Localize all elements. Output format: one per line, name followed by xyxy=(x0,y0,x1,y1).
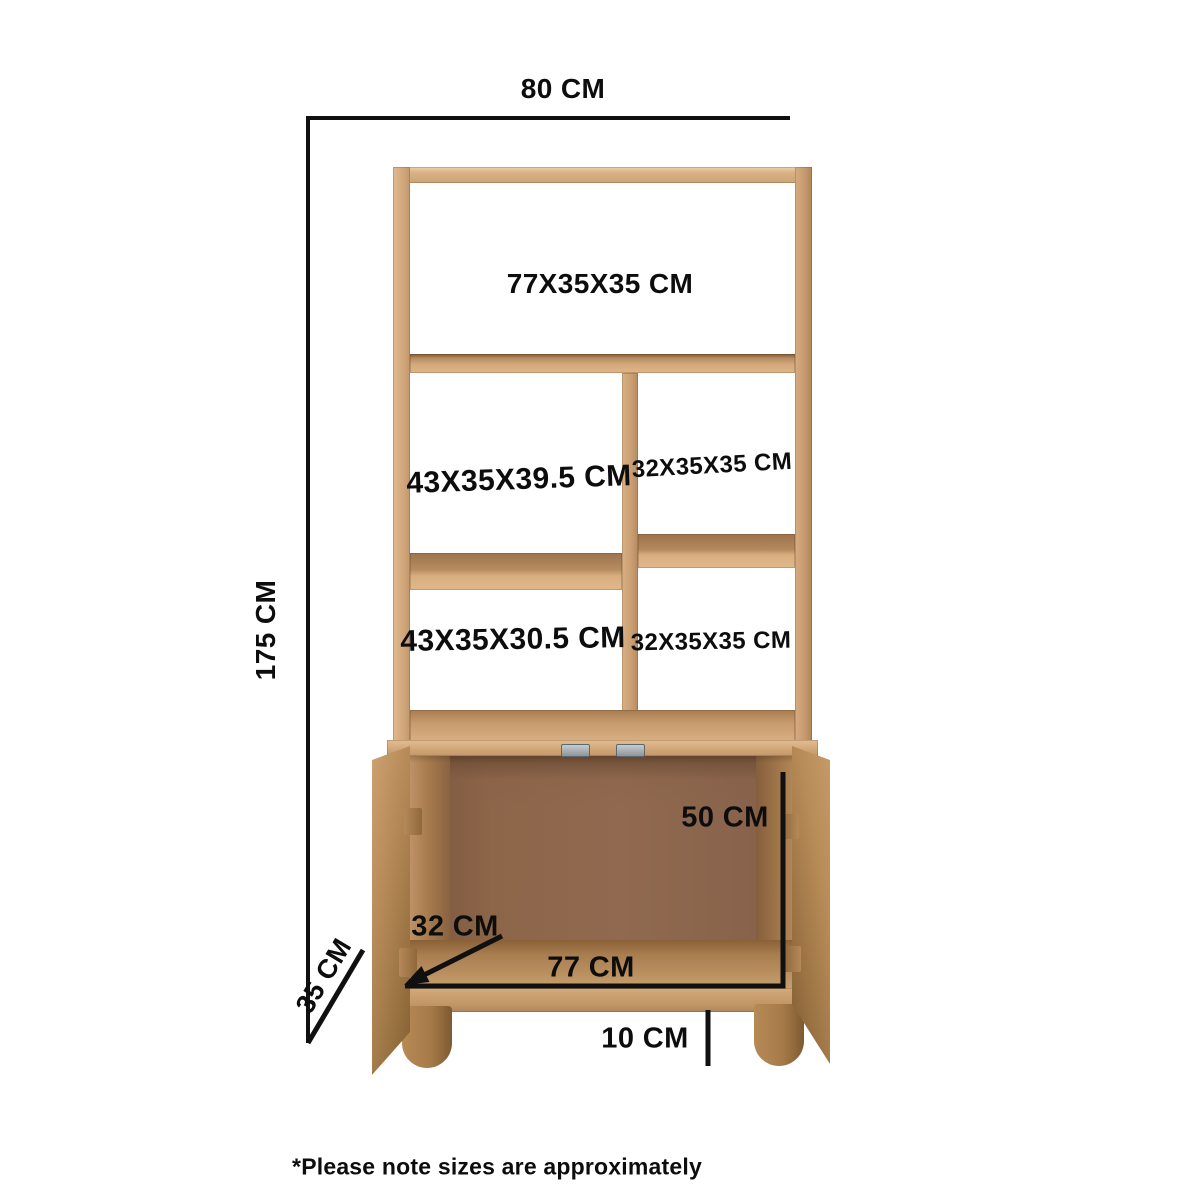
overall-height-label: 175 CM xyxy=(250,580,282,680)
shelf-unit-right-stile xyxy=(795,167,812,745)
center-divider xyxy=(622,373,638,712)
leg-height-label: 10 CM xyxy=(601,1023,688,1056)
middle-right-compartment-label: 32X35X35 CM xyxy=(631,448,793,484)
shelf-2-left xyxy=(410,553,622,590)
cabinet-height-label: 50 CM xyxy=(681,802,768,835)
bottom-right-compartment-label: 32X35X35 CM xyxy=(631,627,792,658)
product-dimension-diagram: 80 CM 175 CM 77X35X35 CM 43X35X39.5 CM 3… xyxy=(0,0,1200,1200)
footnote: *Please note sizes are approximately xyxy=(292,1154,702,1181)
cabinet-right-leg xyxy=(754,1004,804,1066)
cabinet-top-slab xyxy=(387,740,818,756)
shelf-2-right xyxy=(638,534,795,568)
bottom-left-compartment-label: 43X35X30.5 CM xyxy=(400,621,626,659)
cabinet-width-label: 77 CM xyxy=(547,952,634,985)
right-door-hinge-block xyxy=(782,814,799,839)
right-door-hinge-block xyxy=(784,946,801,972)
shelf-unit-bottom-rail xyxy=(410,710,795,742)
left-door-hinge-block xyxy=(399,948,417,977)
hinge-right-icon xyxy=(616,744,645,757)
top-compartment-label: 77X35X35 CM xyxy=(507,268,694,300)
shelf-unit-top-slab xyxy=(393,167,812,183)
shelf-1 xyxy=(410,354,795,373)
cabinet-depth-label: 32 CM xyxy=(411,911,498,944)
left-door-hinge-block xyxy=(404,808,422,835)
overall-width-label: 80 CM xyxy=(521,73,605,105)
overall-depth-label: 35 CM xyxy=(290,933,359,1019)
cabinet-bottom-lip xyxy=(404,988,801,1012)
middle-left-compartment-label: 43X35X39.5 CM xyxy=(406,459,632,501)
hinge-left-icon xyxy=(561,744,590,757)
